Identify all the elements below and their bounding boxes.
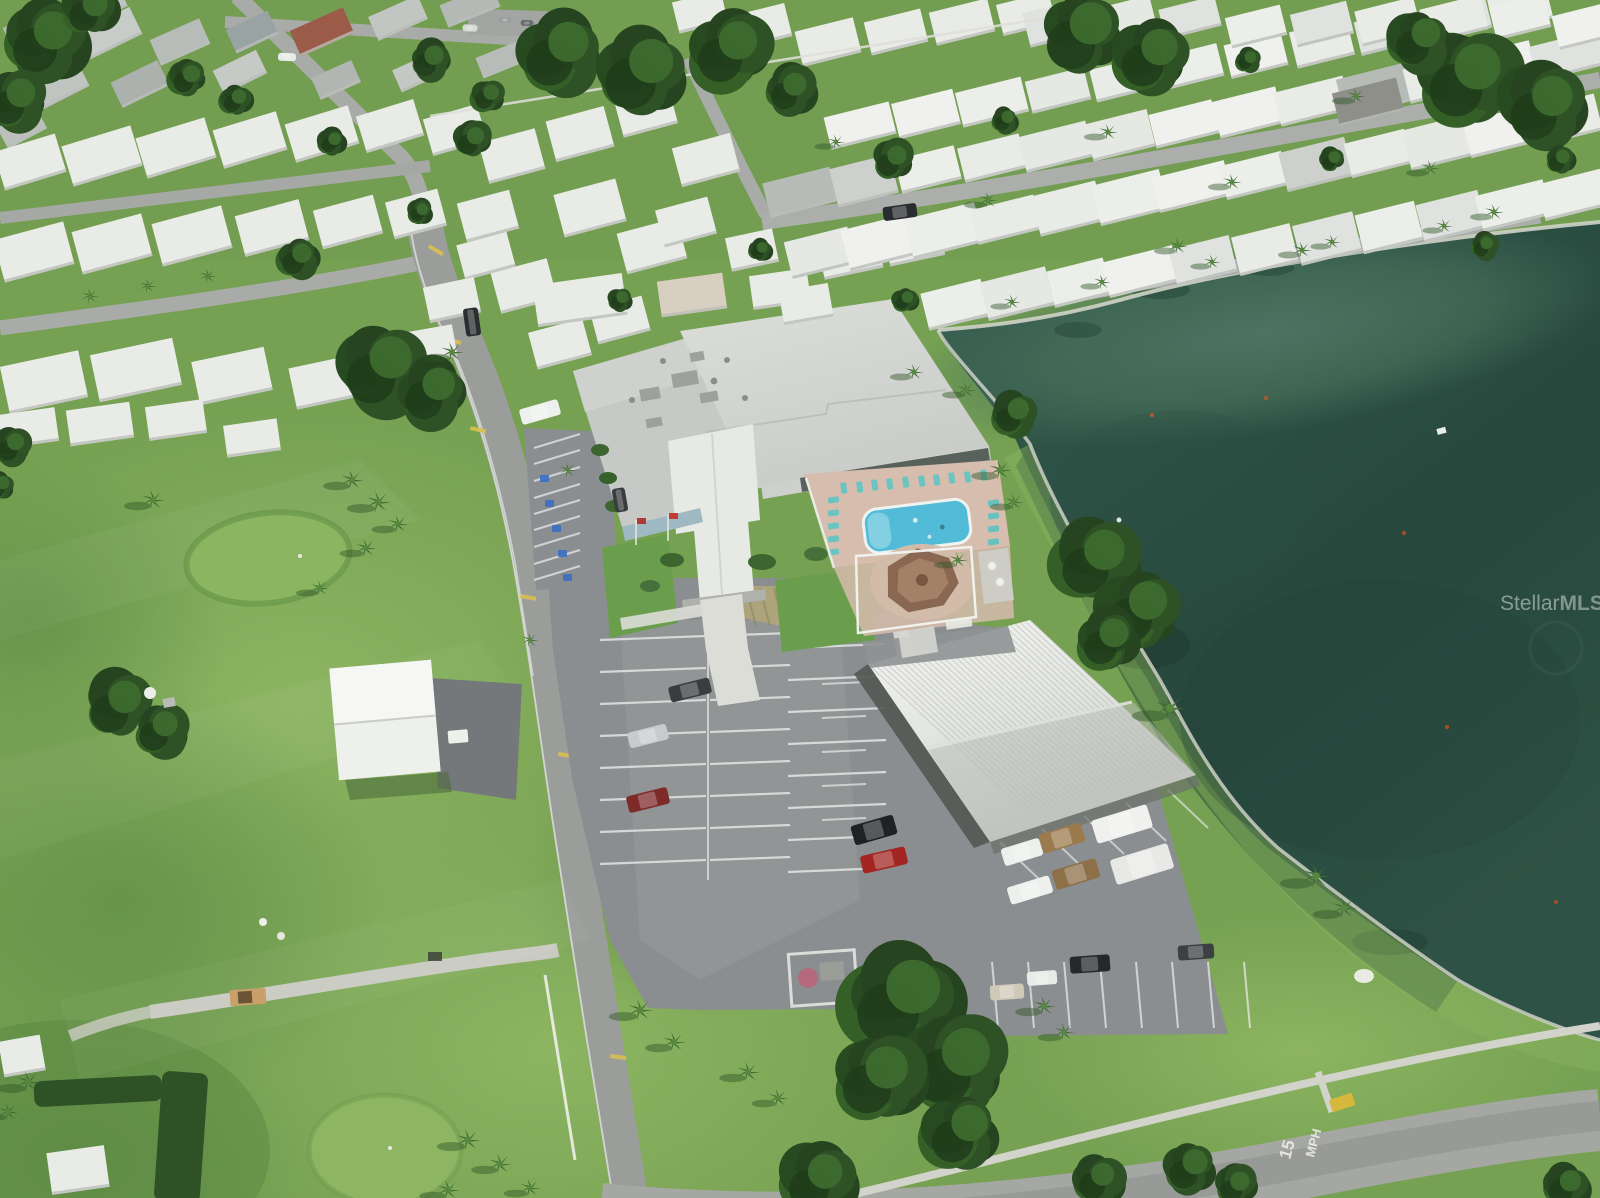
- svg-text:StellarMLS: StellarMLS: [1500, 592, 1600, 615]
